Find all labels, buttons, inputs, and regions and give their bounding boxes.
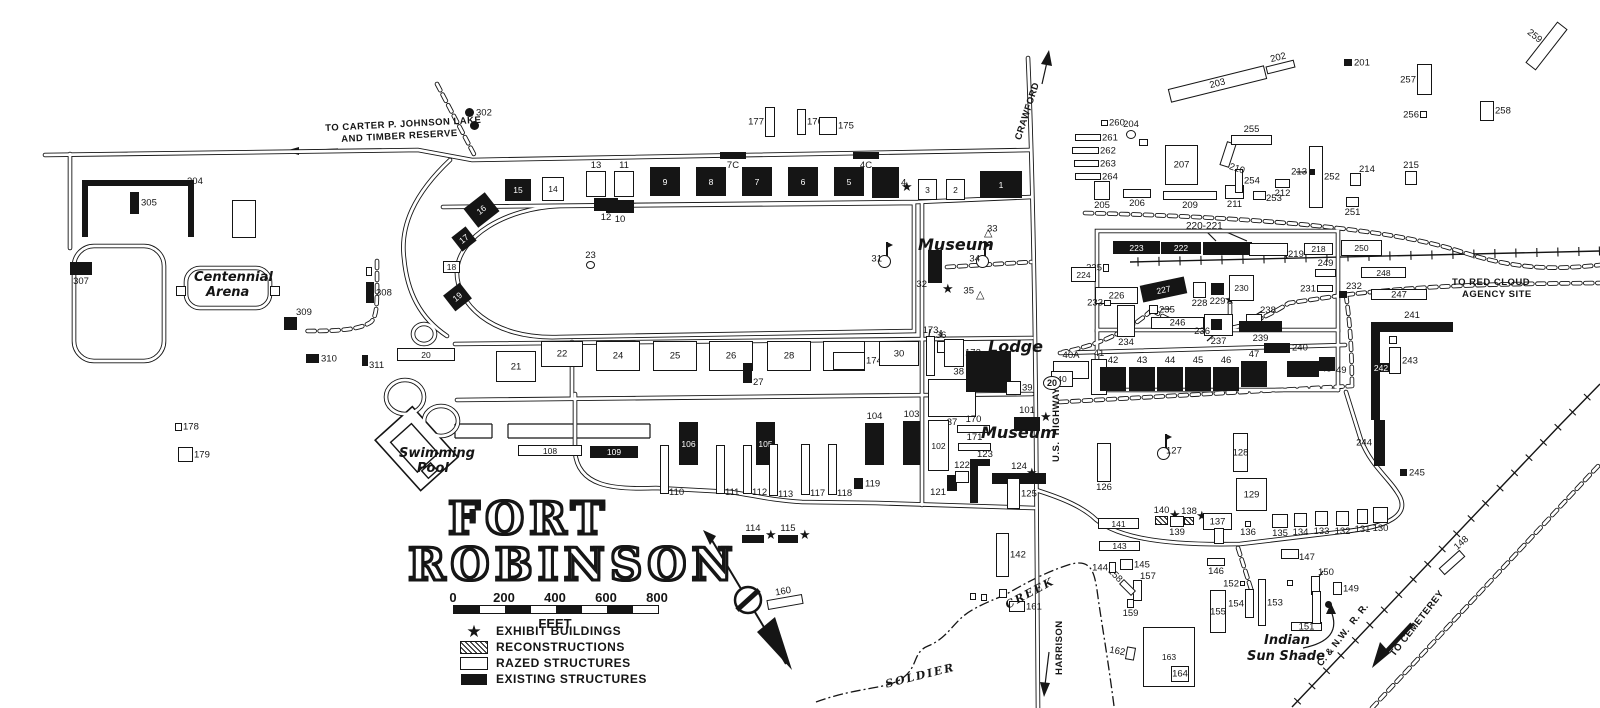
building-131: 131 (1357, 509, 1368, 524)
building-label: 112 (752, 488, 767, 498)
building-46: 46 (1213, 367, 1239, 391)
reconstruction-swatch-icon (460, 641, 488, 654)
building-label: 34 (969, 254, 980, 264)
building-42: 42 (1100, 367, 1126, 391)
building-label: 134 (1293, 528, 1309, 538)
building-239: 239 (1239, 321, 1282, 332)
building-label: 305 (141, 198, 157, 208)
building-31: 31 (884, 258, 885, 259)
building-245: 245 (1400, 469, 1407, 476)
building-2: 2 (946, 179, 965, 200)
building-218: 218 (1304, 243, 1333, 255)
building-label: 149 (1343, 584, 1359, 594)
building-113: 113 (769, 444, 778, 496)
building-label: 131 (1355, 525, 1371, 535)
building-101: 101★ (1014, 417, 1040, 431)
building-label: 118 (837, 489, 852, 499)
building-label: 249 (1318, 259, 1334, 269)
structure (1325, 601, 1332, 608)
building-138: 138★ (1184, 517, 1194, 525)
building-259: 259 (1525, 22, 1567, 71)
building-label: 35 (963, 286, 974, 296)
building-label: 219 (1288, 250, 1304, 260)
building-260: 260 (1101, 120, 1108, 126)
building-5: 5 (834, 167, 864, 196)
building-label: 23 (585, 251, 596, 261)
building-236: 236 (1211, 319, 1222, 330)
structure (232, 200, 256, 238)
building-233: 233 (1104, 300, 1111, 306)
building-173: 173 (926, 336, 935, 376)
building-label: 7C (727, 161, 739, 171)
building-label: 110 (669, 488, 684, 498)
building-25: 25 (653, 341, 697, 371)
building-label: 144 (1092, 563, 1108, 573)
building-230: 230 (1229, 275, 1254, 301)
legend-label: RECONSTRUCTIONS (496, 640, 625, 654)
building-160: 160 (766, 594, 803, 610)
building-label: 171 (967, 433, 983, 443)
building-127: 127 (1163, 450, 1164, 451)
building-250: 250 (1341, 240, 1382, 256)
building-30: 30 (879, 341, 919, 366)
building-label: 160 (774, 585, 791, 597)
building-label: 140 (1154, 506, 1170, 516)
building-142: 142 (996, 533, 1009, 577)
building-174: 174 (833, 352, 865, 370)
building-27: 27 (743, 363, 752, 383)
building-label: 159 (1123, 609, 1139, 619)
building-177: 177 (765, 107, 775, 137)
building-label: 210 (1228, 162, 1246, 176)
building-35: △35 (976, 290, 977, 291)
building-213: 213 (1309, 169, 1315, 175)
building-20: 20 (397, 348, 455, 361)
building-44: 44 (1157, 367, 1183, 391)
building-45: 45 (1185, 367, 1211, 391)
building-4C: 4C (853, 152, 879, 159)
building-label: 155 (1210, 607, 1226, 617)
building-label: 41 (1094, 349, 1105, 359)
building-label: 227 (1156, 284, 1172, 295)
building-257: 257 (1417, 64, 1432, 95)
building-label: 308 (376, 288, 392, 298)
building-label: 126 (1096, 483, 1112, 493)
building-label: 4C (860, 161, 872, 171)
building-label: 123 (977, 450, 993, 460)
building-label: 138 (1181, 507, 1197, 517)
exhibit-star-icon: ★ (765, 528, 777, 541)
building-label: 310 (321, 354, 337, 364)
building-147: 147 (1281, 549, 1299, 559)
building-label: 258 (1495, 106, 1511, 116)
building-label: 101 (1019, 406, 1035, 416)
building-label: 224 (1076, 270, 1090, 279)
building-172: 172 (944, 339, 964, 367)
exhibit-star-icon: ★ (901, 180, 913, 193)
building-label: 311 (369, 361, 384, 371)
legend-row-exhibit: ★ EXHIBIT BUILDINGS (452, 623, 647, 639)
building-label: 255 (1244, 125, 1260, 135)
building-34: 34 (982, 258, 983, 259)
building-6: 6 (788, 167, 818, 196)
building-label: 119 (865, 479, 880, 489)
building-label: 307 (73, 277, 89, 287)
structure (1203, 242, 1252, 255)
legend-label: EXISTING STRUCTURES (496, 672, 647, 686)
building-label: 108 (543, 446, 557, 455)
building-label: 2 (953, 185, 958, 194)
building-label: 164 (1172, 669, 1188, 679)
building-203: 203 (1168, 65, 1267, 103)
building-111: 111 (716, 445, 725, 494)
building-label: 257 (1400, 75, 1416, 85)
building-119: 119 (854, 478, 863, 489)
building-label: 218 (1311, 245, 1325, 254)
building-311: 311 (362, 355, 368, 366)
building-label: 212 (1275, 189, 1291, 199)
scale-bar-segments (453, 605, 659, 614)
building-114: 114★ (742, 535, 764, 543)
building-126: 126 (1097, 443, 1111, 482)
scale-tick: 800 (646, 590, 668, 605)
building-244: 244 (1374, 420, 1385, 466)
building-38: 38 (966, 351, 1011, 392)
building-129: 129 (1236, 478, 1267, 511)
building-106: 106 (679, 422, 698, 465)
building-13: 13 (586, 171, 606, 197)
building-label: 248 (1376, 268, 1390, 277)
building-140: 140★ (1155, 516, 1168, 525)
building-label: 309 (296, 308, 312, 318)
legend-row-razed: RAZED STRUCTURES (452, 655, 647, 671)
building-label: 129 (1244, 490, 1260, 500)
building-164: 164 (1171, 666, 1189, 682)
building-label: 130 (1373, 524, 1389, 534)
building-label: 256 (1403, 110, 1419, 120)
building-241: 241 (1371, 322, 1453, 332)
building-242: 242 (1373, 363, 1389, 372)
building-label: 27 (753, 378, 764, 388)
building-label: 136 (1240, 528, 1256, 538)
building-122: 122 (955, 471, 969, 483)
building-133: 133 (1315, 511, 1328, 526)
building-176: 176 (797, 109, 806, 135)
building-32: 32★ (928, 250, 942, 283)
building-49: 49 (1319, 357, 1335, 371)
building-48: 48 (1287, 361, 1319, 377)
building-210: 210 (1219, 141, 1236, 168)
building-label: 252 (1324, 172, 1340, 182)
building-47: 47 (1241, 361, 1267, 387)
structure (970, 593, 976, 600)
building-label: 7 (755, 177, 760, 186)
building-label: 3 (925, 185, 930, 194)
building-label: 175 (838, 121, 854, 131)
building-label: 247 (1391, 290, 1407, 300)
building-222: 222 (1161, 242, 1201, 254)
building-154: 154 (1245, 589, 1254, 618)
building-label: 142 (1010, 550, 1026, 560)
building-109: 109 (590, 446, 638, 458)
building-10: 10 (606, 200, 634, 213)
exhibit-star-icon: ★ (466, 623, 481, 640)
building-225: 225 (1103, 264, 1109, 272)
building-label: 205 (1094, 201, 1110, 211)
building-141: 141 (1098, 518, 1139, 529)
building-label: 38 (953, 367, 964, 377)
building-159: 159 (1127, 599, 1134, 608)
building-110: 110 (660, 445, 669, 494)
building-223: 223 (1113, 241, 1160, 254)
building-label: 243 (1402, 356, 1418, 366)
building-309: 309 (284, 317, 297, 330)
structure (999, 589, 1007, 598)
building-label: 234 (1118, 338, 1134, 348)
building-label: 22 (557, 349, 568, 359)
building-label: 230 (1234, 284, 1248, 293)
building-7C: 7C (720, 152, 746, 159)
building-8: 8 (696, 167, 726, 196)
building-132: 132 (1336, 511, 1349, 526)
building-label: 250 (1354, 244, 1368, 253)
building-117: 117 (801, 444, 810, 495)
building-145: 145 (1120, 559, 1133, 570)
legend-row-existing: EXISTING STRUCTURES (452, 671, 647, 687)
building-307: 307 (70, 262, 92, 275)
building-202: 202 (1265, 60, 1295, 75)
legend: ★ EXHIBIT BUILDINGS RECONSTRUCTIONS RAZE… (452, 623, 647, 687)
building-label: 124 (1011, 462, 1027, 472)
exhibit-star-icon: ★ (1026, 466, 1038, 479)
building-label: 135 (1272, 529, 1288, 539)
building-234: 234 (1117, 305, 1135, 337)
building-label: 239 (1253, 334, 1269, 344)
building-label: 223 (1129, 243, 1143, 252)
building-label: 32 (916, 280, 927, 290)
building-17: 17 (451, 226, 476, 251)
building-212: 212 (1275, 179, 1290, 188)
building-262: 262 (1072, 147, 1099, 154)
building-label: 304 (187, 177, 203, 187)
building-label: 244 (1356, 438, 1372, 448)
building-143: 143 (1099, 541, 1140, 551)
building-15: 15 (505, 179, 531, 201)
structure (470, 121, 479, 130)
building-label: 161 (1026, 602, 1042, 612)
buildings-layer: 3023043053073083093103111781791771761751… (0, 0, 1600, 708)
building-label: 113 (778, 490, 793, 500)
exhibit-star-icon: ★ (1040, 410, 1052, 423)
building-209: 209 (1163, 191, 1217, 200)
building-label: 245 (1409, 468, 1425, 478)
building-118: 118 (828, 444, 837, 495)
scale-tick: 600 (595, 590, 617, 605)
building-14: 14 (542, 177, 564, 201)
building-label: 236 (1194, 327, 1210, 337)
structure (1214, 528, 1224, 544)
building-label: 263 (1100, 159, 1116, 169)
building-label: 109 (607, 448, 621, 457)
building-label: 147 (1299, 553, 1315, 563)
building-175: 175 (819, 117, 837, 135)
building-258: 258 (1480, 101, 1494, 121)
building-label: 162 (1109, 645, 1126, 657)
building-206: 206 (1123, 189, 1151, 198)
building-219: 219 (1249, 243, 1288, 256)
building-40: 40 (1051, 371, 1073, 387)
building-label: 228 (1192, 299, 1208, 309)
building-43: 43 (1129, 367, 1155, 391)
building-label: 103 (904, 410, 920, 420)
building-label: 43 (1137, 356, 1148, 366)
building-11: 11 (614, 171, 634, 197)
building-251: 251 (1346, 197, 1359, 207)
building-label: 11 (619, 161, 629, 171)
building-label: 125 (1021, 489, 1037, 499)
building-104: 104 (865, 423, 884, 465)
building-label: 202 (1269, 51, 1287, 64)
building-264: 264 (1075, 173, 1101, 180)
building-label: 19 (451, 291, 464, 304)
building-label: 9 (663, 177, 668, 186)
building-label: 13 (591, 161, 602, 171)
building-label: 226 (1109, 291, 1125, 301)
structure (970, 459, 990, 466)
building-label: 18 (447, 263, 456, 272)
building-16: 16 (463, 192, 499, 228)
building-label: 233 (1087, 298, 1103, 308)
building-label: 206 (1129, 199, 1145, 209)
exhibit-star-icon: ★ (799, 528, 811, 541)
fort-robinson-map: 3023043053073083093103111781791771761751… (0, 0, 1600, 708)
map-title-line2: ROBINSON (408, 538, 738, 591)
building-label: 46 (1221, 356, 1232, 366)
building-102: 102 (928, 420, 949, 471)
building-label: 214 (1359, 165, 1375, 175)
building-label: 148 (1452, 534, 1470, 552)
building-103: 103 (903, 421, 920, 465)
building-label: 127 (1166, 446, 1182, 456)
structure (1287, 580, 1293, 586)
building-label: 20 (421, 350, 430, 359)
building-label: 261 (1102, 133, 1118, 143)
building-label: 163 (1162, 653, 1176, 662)
building-232: 232 (1339, 291, 1347, 298)
building-255: 255 (1231, 135, 1272, 145)
building-label: 207 (1174, 160, 1190, 170)
building-215: 215 (1405, 171, 1417, 185)
building-153: 153 (1258, 579, 1266, 626)
building-3: 3 (918, 179, 937, 200)
building-label: 17 (458, 233, 471, 246)
building-label: 114 (745, 524, 760, 534)
building-label: 143 (1112, 542, 1126, 551)
building-label: 139 (1169, 528, 1185, 538)
structure (1139, 139, 1148, 146)
building-label: 28 (784, 351, 795, 361)
legend-label: RAZED STRUCTURES (496, 656, 631, 670)
building-22: 22 (541, 341, 583, 367)
building-label: 204 (1123, 120, 1139, 130)
building-label: 231 (1300, 284, 1316, 294)
building-label: 1 (999, 180, 1004, 189)
building-label: 115 (780, 524, 795, 534)
scale-tick: 400 (544, 590, 566, 605)
building-label: 5 (847, 177, 852, 186)
building-label: 262 (1100, 146, 1116, 156)
building-252: 252 (1309, 146, 1323, 208)
building-235: 235 (1149, 305, 1158, 314)
building-label: 42 (1108, 356, 1119, 366)
building-label: 170 (966, 415, 982, 425)
building-label: 145 (1134, 560, 1150, 570)
building-224: 224 (1071, 267, 1096, 282)
building-label: 14 (548, 185, 557, 194)
building-label: 45 (1193, 356, 1204, 366)
building-161: 161 (1009, 601, 1025, 612)
building-label: 251 (1345, 208, 1361, 218)
building-label: 213 (1291, 167, 1307, 177)
building-label: 201 (1354, 58, 1370, 68)
building-label: 260 (1109, 118, 1125, 128)
building-label: 211 (1227, 200, 1242, 210)
razed-swatch-icon (460, 657, 488, 670)
building-243: 243 (1389, 347, 1401, 374)
building-label: 30 (894, 349, 905, 359)
building-label: 241 (1404, 311, 1420, 321)
building-label: 24 (613, 351, 624, 361)
structure (981, 594, 987, 601)
building-207: 207 (1165, 145, 1198, 185)
building-label: 128 (1233, 448, 1249, 458)
flag-icon (984, 242, 986, 256)
building-label: 215 (1403, 161, 1419, 171)
building-label: 238 (1260, 306, 1276, 316)
building-label: 179 (194, 450, 210, 460)
building-label: 121 (930, 488, 946, 498)
building-228: 228 (1193, 282, 1206, 298)
building-308: 308 (366, 282, 374, 303)
building-label: 154 (1228, 599, 1244, 609)
building-label: 10 (615, 215, 626, 225)
building-136: 136 (1245, 521, 1251, 527)
building-23: 23 (586, 261, 595, 269)
building-label: 102 (931, 441, 945, 450)
building-label: 157 (1140, 572, 1156, 582)
building-155: 155 (1210, 590, 1226, 633)
building-28: 28 (767, 341, 811, 371)
building-label: 137 (1210, 517, 1226, 527)
building-144: 144 (1109, 562, 1116, 573)
building-9: 9 (650, 167, 680, 196)
building-label: 259 (1525, 28, 1543, 45)
structure (176, 286, 186, 296)
building-302: 302 (465, 108, 474, 117)
legend-row-reconstructions: RECONSTRUCTIONS (452, 639, 647, 655)
building-214: 214 (1350, 173, 1361, 186)
building-130: 130 (1373, 507, 1388, 523)
building-label: 178 (183, 422, 199, 432)
structure (270, 286, 280, 296)
building-227: 227 (1140, 277, 1188, 303)
building-253: 253 (1253, 191, 1266, 200)
building-label: 44 (1165, 356, 1176, 366)
building-label: 49 (1336, 366, 1347, 376)
building-256: 256 (1420, 111, 1427, 118)
building-label: 6 (801, 177, 806, 186)
building-label: 232 (1346, 282, 1362, 292)
